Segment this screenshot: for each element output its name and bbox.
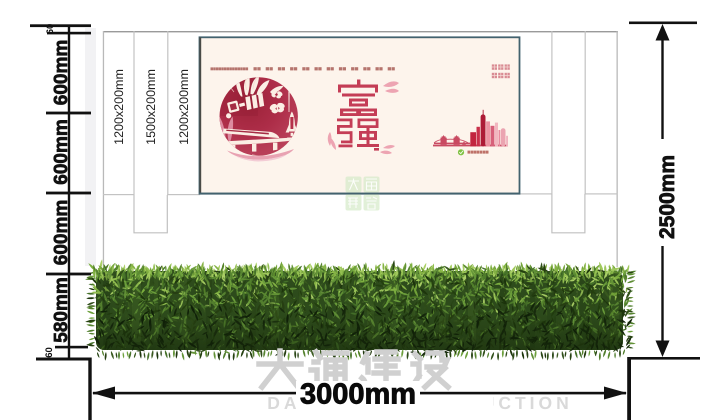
svg-text:1200x200mm: 1200x200mm bbox=[112, 69, 126, 145]
svg-text:2500mm: 2500mm bbox=[656, 155, 679, 239]
svg-text:60: 60 bbox=[44, 347, 55, 358]
svg-text:1200x200mm: 1200x200mm bbox=[177, 69, 191, 145]
svg-text:600mm: 600mm bbox=[51, 119, 72, 185]
svg-text:600mm: 600mm bbox=[51, 40, 72, 106]
svg-text:580mm: 580mm bbox=[51, 277, 72, 343]
svg-text:1500x200mm: 1500x200mm bbox=[144, 69, 158, 145]
svg-text:600mm: 600mm bbox=[51, 200, 72, 266]
svg-text:60: 60 bbox=[45, 24, 56, 35]
svg-text:3000mm: 3000mm bbox=[300, 379, 416, 411]
